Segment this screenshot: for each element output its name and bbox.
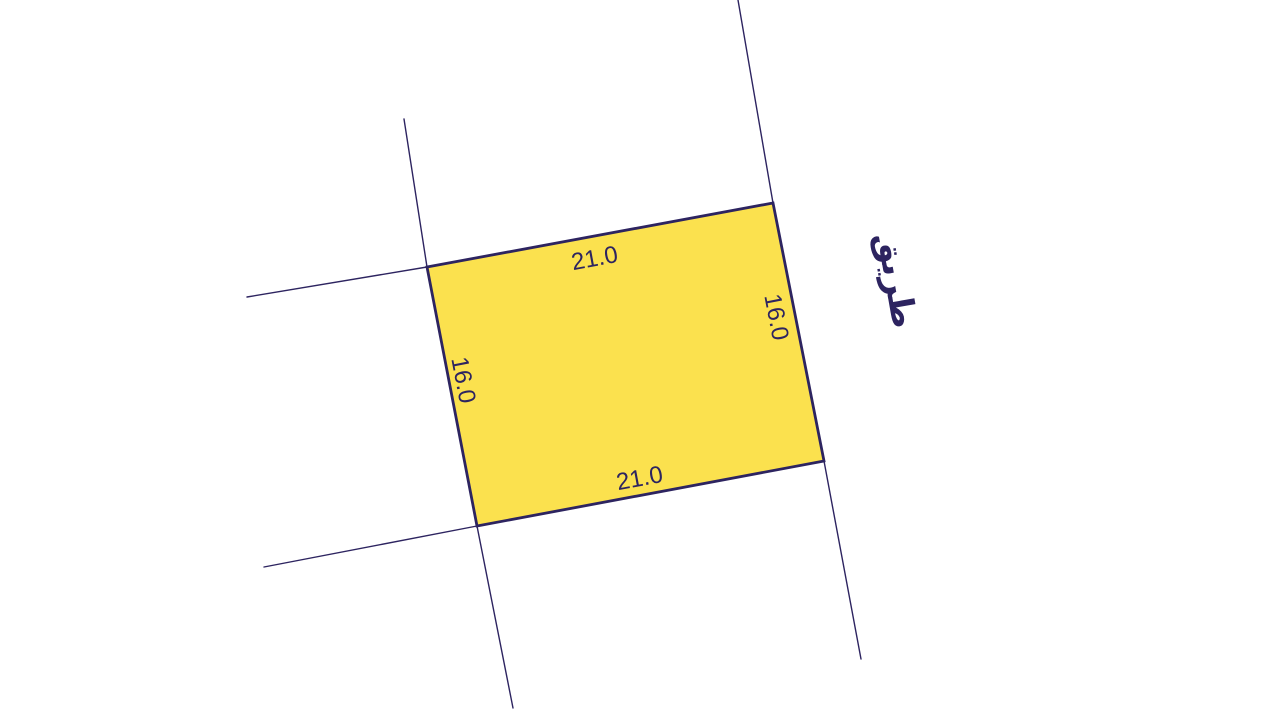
- boundary-line-lower-left: [264, 526, 477, 567]
- map-canvas: 21.0 21.0 16.0 16.0 طريق: [0, 0, 1280, 720]
- road-label: طريق: [868, 229, 924, 331]
- parcel-map: 21.0 21.0 16.0 16.0 طريق: [0, 0, 1280, 720]
- boundary-line-upper-left: [247, 267, 427, 297]
